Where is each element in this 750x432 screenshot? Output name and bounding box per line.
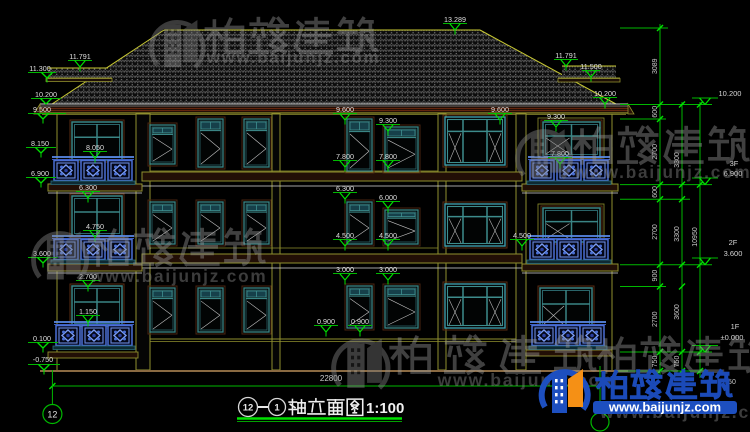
svg-text:3.000: 3.000 [379, 265, 397, 274]
svg-text:www.baijunjz.com: www.baijunjz.com [608, 400, 721, 415]
svg-text:www.baijunjz.com: www.baijunjz.com [437, 370, 619, 390]
svg-text:600: 600 [652, 186, 659, 198]
svg-text:10.200: 10.200 [35, 90, 57, 99]
svg-text:6.300: 6.300 [79, 183, 97, 192]
svg-text:www.baijunjz.com: www.baijunjz.com [573, 162, 750, 182]
svg-text:9.300: 9.300 [547, 112, 565, 121]
svg-text:1:100: 1:100 [366, 400, 404, 417]
svg-text:0.900: 0.900 [351, 317, 369, 326]
svg-text:0.100: 0.100 [33, 334, 51, 343]
svg-text:10.200: 10.200 [719, 89, 742, 98]
svg-text:0.900: 0.900 [317, 317, 335, 326]
svg-text:3.600: 3.600 [724, 249, 743, 258]
svg-text:4.500: 4.500 [379, 231, 397, 240]
svg-text:2700: 2700 [652, 311, 659, 327]
svg-text:9.300: 9.300 [379, 116, 397, 125]
svg-text:9.600: 9.600 [491, 105, 509, 114]
svg-text:8.050: 8.050 [86, 143, 104, 152]
svg-text:6.300: 6.300 [336, 184, 354, 193]
svg-text:11.791: 11.791 [69, 52, 90, 61]
svg-text:9.500: 9.500 [33, 105, 51, 114]
svg-text:2F: 2F [729, 238, 738, 247]
svg-text:4.500: 4.500 [336, 231, 354, 240]
svg-text:900: 900 [652, 270, 659, 282]
svg-text:8.150: 8.150 [31, 139, 49, 148]
svg-text:2700: 2700 [652, 224, 659, 240]
svg-text:3300: 3300 [674, 226, 681, 242]
svg-text:1.150: 1.150 [79, 307, 97, 316]
svg-text:www.baijunjz.com: www.baijunjz.com [89, 266, 267, 286]
svg-text:9.600: 9.600 [336, 105, 354, 114]
svg-text:www.baijunjz.com: www.baijunjz.com [206, 48, 381, 67]
svg-text:13.289: 13.289 [444, 15, 466, 24]
svg-text:4.500: 4.500 [513, 231, 531, 240]
svg-text:11.300: 11.300 [29, 64, 50, 73]
svg-text:11.500: 11.500 [580, 62, 601, 71]
svg-text:3089: 3089 [652, 58, 659, 74]
svg-text:1: 1 [274, 403, 280, 414]
svg-text:6.000: 6.000 [379, 193, 397, 202]
svg-text:-0.750: -0.750 [33, 355, 53, 364]
svg-text:11.791: 11.791 [555, 51, 576, 60]
svg-text:7.800: 7.800 [336, 152, 354, 161]
svg-text:1F: 1F [731, 322, 740, 331]
svg-text:6.900: 6.900 [31, 169, 49, 178]
svg-text:10950: 10950 [692, 227, 699, 247]
svg-text:750: 750 [652, 356, 659, 368]
svg-text:600: 600 [652, 106, 659, 118]
svg-text:3.000: 3.000 [336, 265, 354, 274]
svg-text:12: 12 [243, 403, 254, 414]
svg-text:10.200: 10.200 [594, 89, 616, 98]
svg-text:7.800: 7.800 [379, 152, 397, 161]
svg-text:3600: 3600 [674, 304, 681, 320]
svg-text:12: 12 [47, 410, 57, 420]
svg-text:4.750: 4.750 [86, 222, 104, 231]
